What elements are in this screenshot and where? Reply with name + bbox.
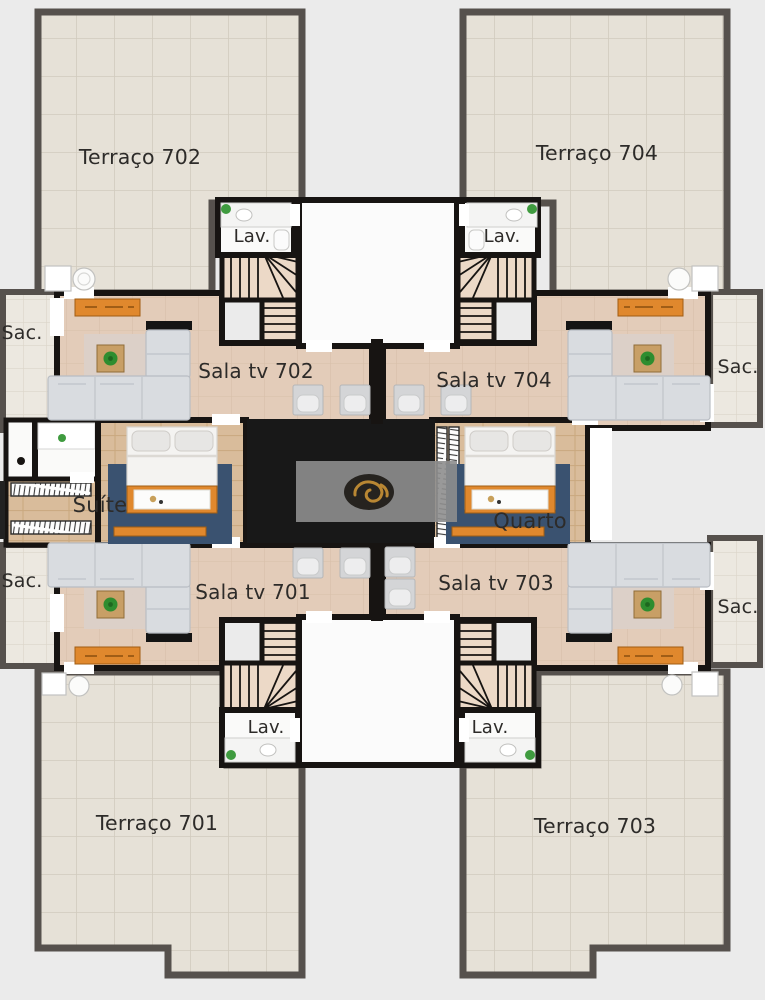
living-703-label: Sala tv 703 bbox=[438, 571, 554, 595]
sac-top-right-label: Sac. bbox=[718, 356, 759, 378]
terrace-704-label: Terraço 704 bbox=[535, 141, 658, 165]
armchair bbox=[293, 548, 323, 578]
party-wall-top bbox=[371, 339, 383, 424]
bathroom-plant bbox=[58, 434, 66, 442]
terrace-703-label: Terraço 703 bbox=[533, 814, 656, 838]
terrace-701-label: Terraço 701 bbox=[95, 811, 218, 835]
suite-label: Suíte bbox=[73, 493, 128, 517]
brand-watermark bbox=[296, 461, 457, 522]
armchair bbox=[385, 579, 415, 609]
floor-plan: Terraço 702 Terraço 704 Terraço 701 Terr… bbox=[0, 0, 765, 1000]
armchair bbox=[394, 385, 424, 415]
armchair bbox=[340, 548, 370, 578]
bathroom-counter bbox=[38, 423, 95, 449]
closet-rack bbox=[11, 521, 91, 534]
bathroom-drain bbox=[17, 457, 25, 465]
armchair bbox=[340, 385, 370, 415]
bathroom-divider-wall bbox=[32, 420, 38, 479]
living-701-label: Sala tv 701 bbox=[195, 580, 311, 604]
lav-top-left-label: Lav. bbox=[234, 226, 271, 247]
quarto-label: Quarto bbox=[493, 509, 567, 533]
quarto-side-panel bbox=[590, 428, 612, 540]
corridor-top bbox=[299, 200, 457, 346]
suite-bed bbox=[108, 427, 232, 544]
armchair bbox=[293, 385, 323, 415]
sac-top-left-label: Sac. bbox=[2, 322, 43, 344]
living-704-label: Sala tv 704 bbox=[436, 368, 552, 392]
corridor-bottom bbox=[299, 617, 457, 765]
terrace-702-label: Terraço 702 bbox=[78, 145, 201, 169]
lav-bottom-right-label: Lav. bbox=[472, 717, 509, 738]
closet-shelf-strip bbox=[0, 481, 5, 539]
lav-top-right-label: Lav. bbox=[484, 226, 521, 247]
party-wall-bottom bbox=[371, 543, 383, 621]
logo-swirl-icon bbox=[344, 474, 394, 510]
floor-plan-page: Terraço 702 Terraço 704 Terraço 701 Terr… bbox=[0, 0, 765, 1000]
living-702-label: Sala tv 702 bbox=[198, 359, 314, 383]
armchair bbox=[385, 547, 415, 577]
lav-bottom-left-label: Lav. bbox=[248, 717, 285, 738]
sac-bottom-left-label: Sac. bbox=[2, 570, 43, 592]
sac-bottom-right-label: Sac. bbox=[718, 596, 759, 618]
